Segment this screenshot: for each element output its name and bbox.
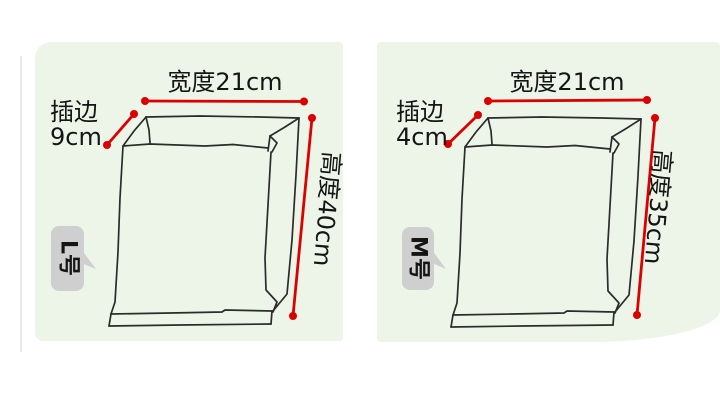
gusset-dimension-line-right: [444, 111, 482, 148]
gusset-label-left: 插边 9cm: [50, 100, 102, 150]
size-tag-right: M号: [406, 236, 429, 280]
width-dimension-line-left: [141, 97, 308, 106]
bag-outline-right: [451, 117, 641, 327]
gusset-label-right-value: 4cm: [396, 125, 448, 150]
gusset-dimension-line-left: [103, 110, 138, 149]
gusset-label-right: 插边 4cm: [396, 100, 448, 150]
width-dimension-line-right: [484, 96, 651, 105]
bag-outline-left: [109, 116, 299, 326]
width-label-left: 宽度21cm: [145, 70, 305, 95]
gusset-label-left-name: 插边: [50, 100, 102, 125]
size-tag-left: L号: [56, 240, 79, 276]
gusset-label-right-name: 插边: [396, 100, 448, 125]
gusset-label-left-value: 9cm: [50, 125, 102, 150]
width-label-right: 宽度21cm: [487, 70, 647, 95]
product-size-diagram: { "title": "paper bag size specification…: [0, 0, 720, 420]
diagram-canvas: [0, 0, 720, 420]
